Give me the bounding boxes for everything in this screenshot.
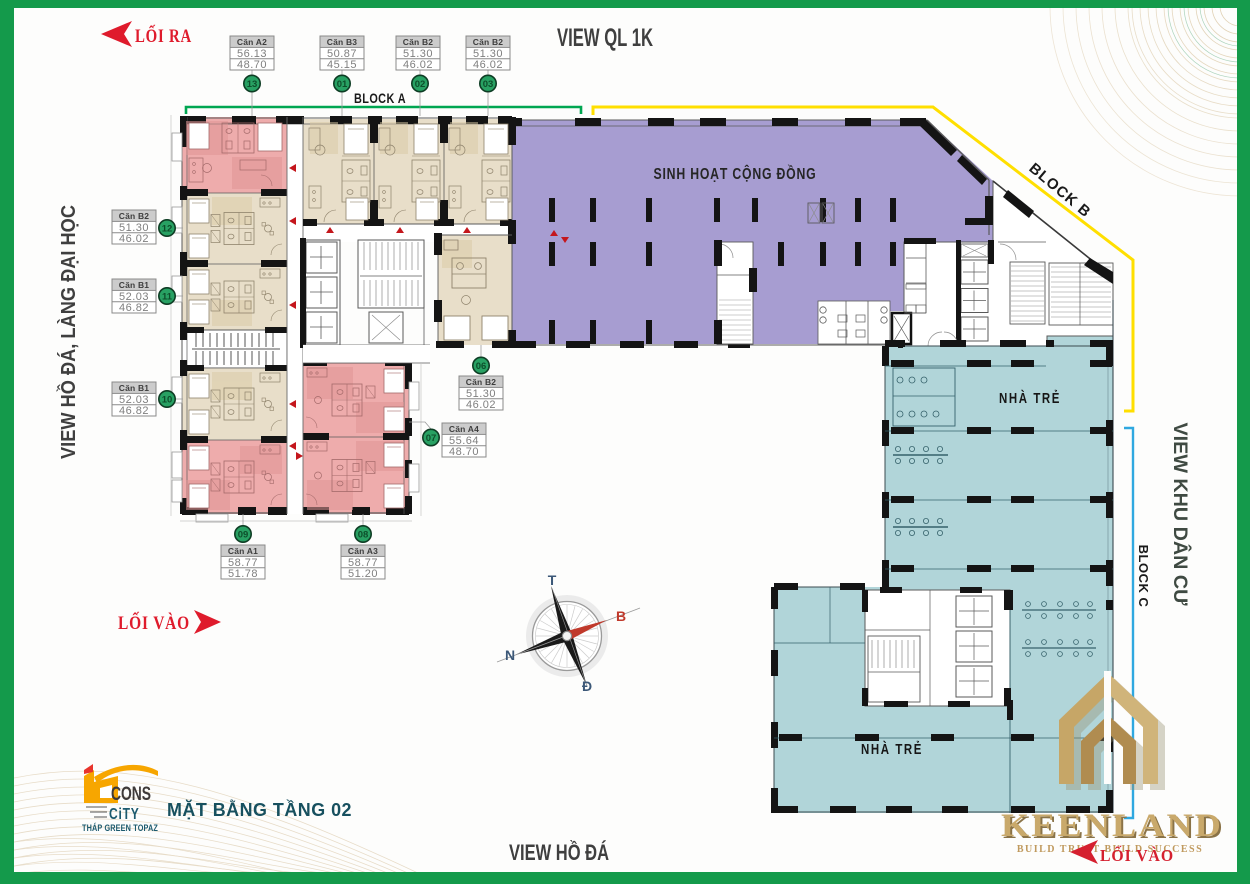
svg-text:Căn A3: Căn A3 [348,546,378,556]
svg-text:Đ: Đ [582,678,592,694]
svg-text:46.82: 46.82 [119,302,149,314]
svg-text:55.64: 55.64 [449,435,479,447]
svg-text:11: 11 [162,292,173,303]
svg-text:46.82: 46.82 [119,405,149,417]
svg-text:52.03: 52.03 [119,291,149,303]
svg-text:12: 12 [162,224,173,235]
svg-text:NHÀ TRẺ: NHÀ TRẺ [861,741,923,758]
svg-text:09: 09 [238,530,249,541]
svg-text:VIEW KHU DÂN CƯ: VIEW KHU DÂN CƯ [1169,423,1191,606]
svg-text:51.78: 51.78 [228,568,258,580]
svg-text:10: 10 [162,395,173,406]
svg-text:Căn A2: Căn A2 [237,37,267,47]
svg-text:51.30: 51.30 [119,222,149,234]
svg-text:BLOCK C: BLOCK C [1136,545,1151,608]
svg-text:NHÀ TRẺ: NHÀ TRẺ [999,390,1061,407]
svg-text:46.02: 46.02 [473,59,503,71]
svg-text:Căn B2: Căn B2 [466,377,497,387]
svg-text:50.87: 50.87 [327,48,357,60]
svg-text:THÁP GREEN TOPAZ: THÁP GREEN TOPAZ [82,823,158,834]
svg-text:LỐI VÀO: LỐI VÀO [118,612,190,634]
svg-text:CiTY: CiTY [109,805,140,823]
svg-text:51.30: 51.30 [473,48,503,60]
svg-text:VIEW HỒ ĐÁ, LÀNG ĐẠI HỌC: VIEW HỒ ĐÁ, LÀNG ĐẠI HỌC [56,205,80,459]
svg-text:Căn B1: Căn B1 [119,383,150,393]
svg-text:Căn B3: Căn B3 [327,37,358,47]
svg-text:Căn B1: Căn B1 [119,280,150,290]
svg-text:13: 13 [247,79,258,90]
svg-text:Căn B2: Căn B2 [403,37,434,47]
svg-text:58.77: 58.77 [348,557,378,569]
svg-text:01: 01 [337,79,348,90]
svg-text:MẶT BẰNG TẦNG 02: MẶT BẰNG TẦNG 02 [167,799,352,820]
svg-text:48.70: 48.70 [237,59,267,71]
svg-text:46.02: 46.02 [119,233,149,245]
svg-text:07: 07 [426,433,437,444]
svg-text:56.13: 56.13 [237,48,267,60]
svg-text:06: 06 [476,361,487,372]
svg-text:51.30: 51.30 [466,388,496,400]
svg-text:Căn A1: Căn A1 [228,546,258,556]
svg-text:VIEW QL 1K: VIEW QL 1K [557,24,653,52]
svg-text:46.02: 46.02 [403,59,433,71]
svg-text:03: 03 [483,79,494,90]
svg-text:58.77: 58.77 [228,557,258,569]
svg-text:VIEW HỒ ĐÁ: VIEW HỒ ĐÁ [509,840,609,865]
svg-text:T: T [548,572,557,588]
svg-text:45.15: 45.15 [327,59,357,71]
svg-text:02: 02 [415,79,426,90]
svg-text:52.03: 52.03 [119,394,149,406]
svg-text:B: B [616,608,626,624]
svg-text:Căn B2: Căn B2 [119,211,150,221]
svg-text:46.02: 46.02 [466,399,496,411]
svg-text:Căn A4: Căn A4 [449,424,479,434]
svg-text:CONS: CONS [111,783,151,805]
svg-text:N: N [505,647,515,663]
svg-text:48.70: 48.70 [449,446,479,458]
svg-text:LỐI VÀO: LỐI VÀO [1100,845,1174,865]
svg-text:BLOCK A: BLOCK A [354,91,406,106]
svg-text:SINH HOẠT CỘNG ĐỒNG: SINH HOẠT CỘNG ĐỒNG [654,165,817,183]
svg-text:LỐI RA: LỐI RA [135,25,192,47]
svg-text:KEENLAND: KEENLAND [1001,808,1223,844]
svg-text:08: 08 [358,530,369,541]
svg-text:51.30: 51.30 [403,48,433,60]
svg-text:Căn B2: Căn B2 [473,37,504,47]
svg-text:51.20: 51.20 [348,568,378,580]
